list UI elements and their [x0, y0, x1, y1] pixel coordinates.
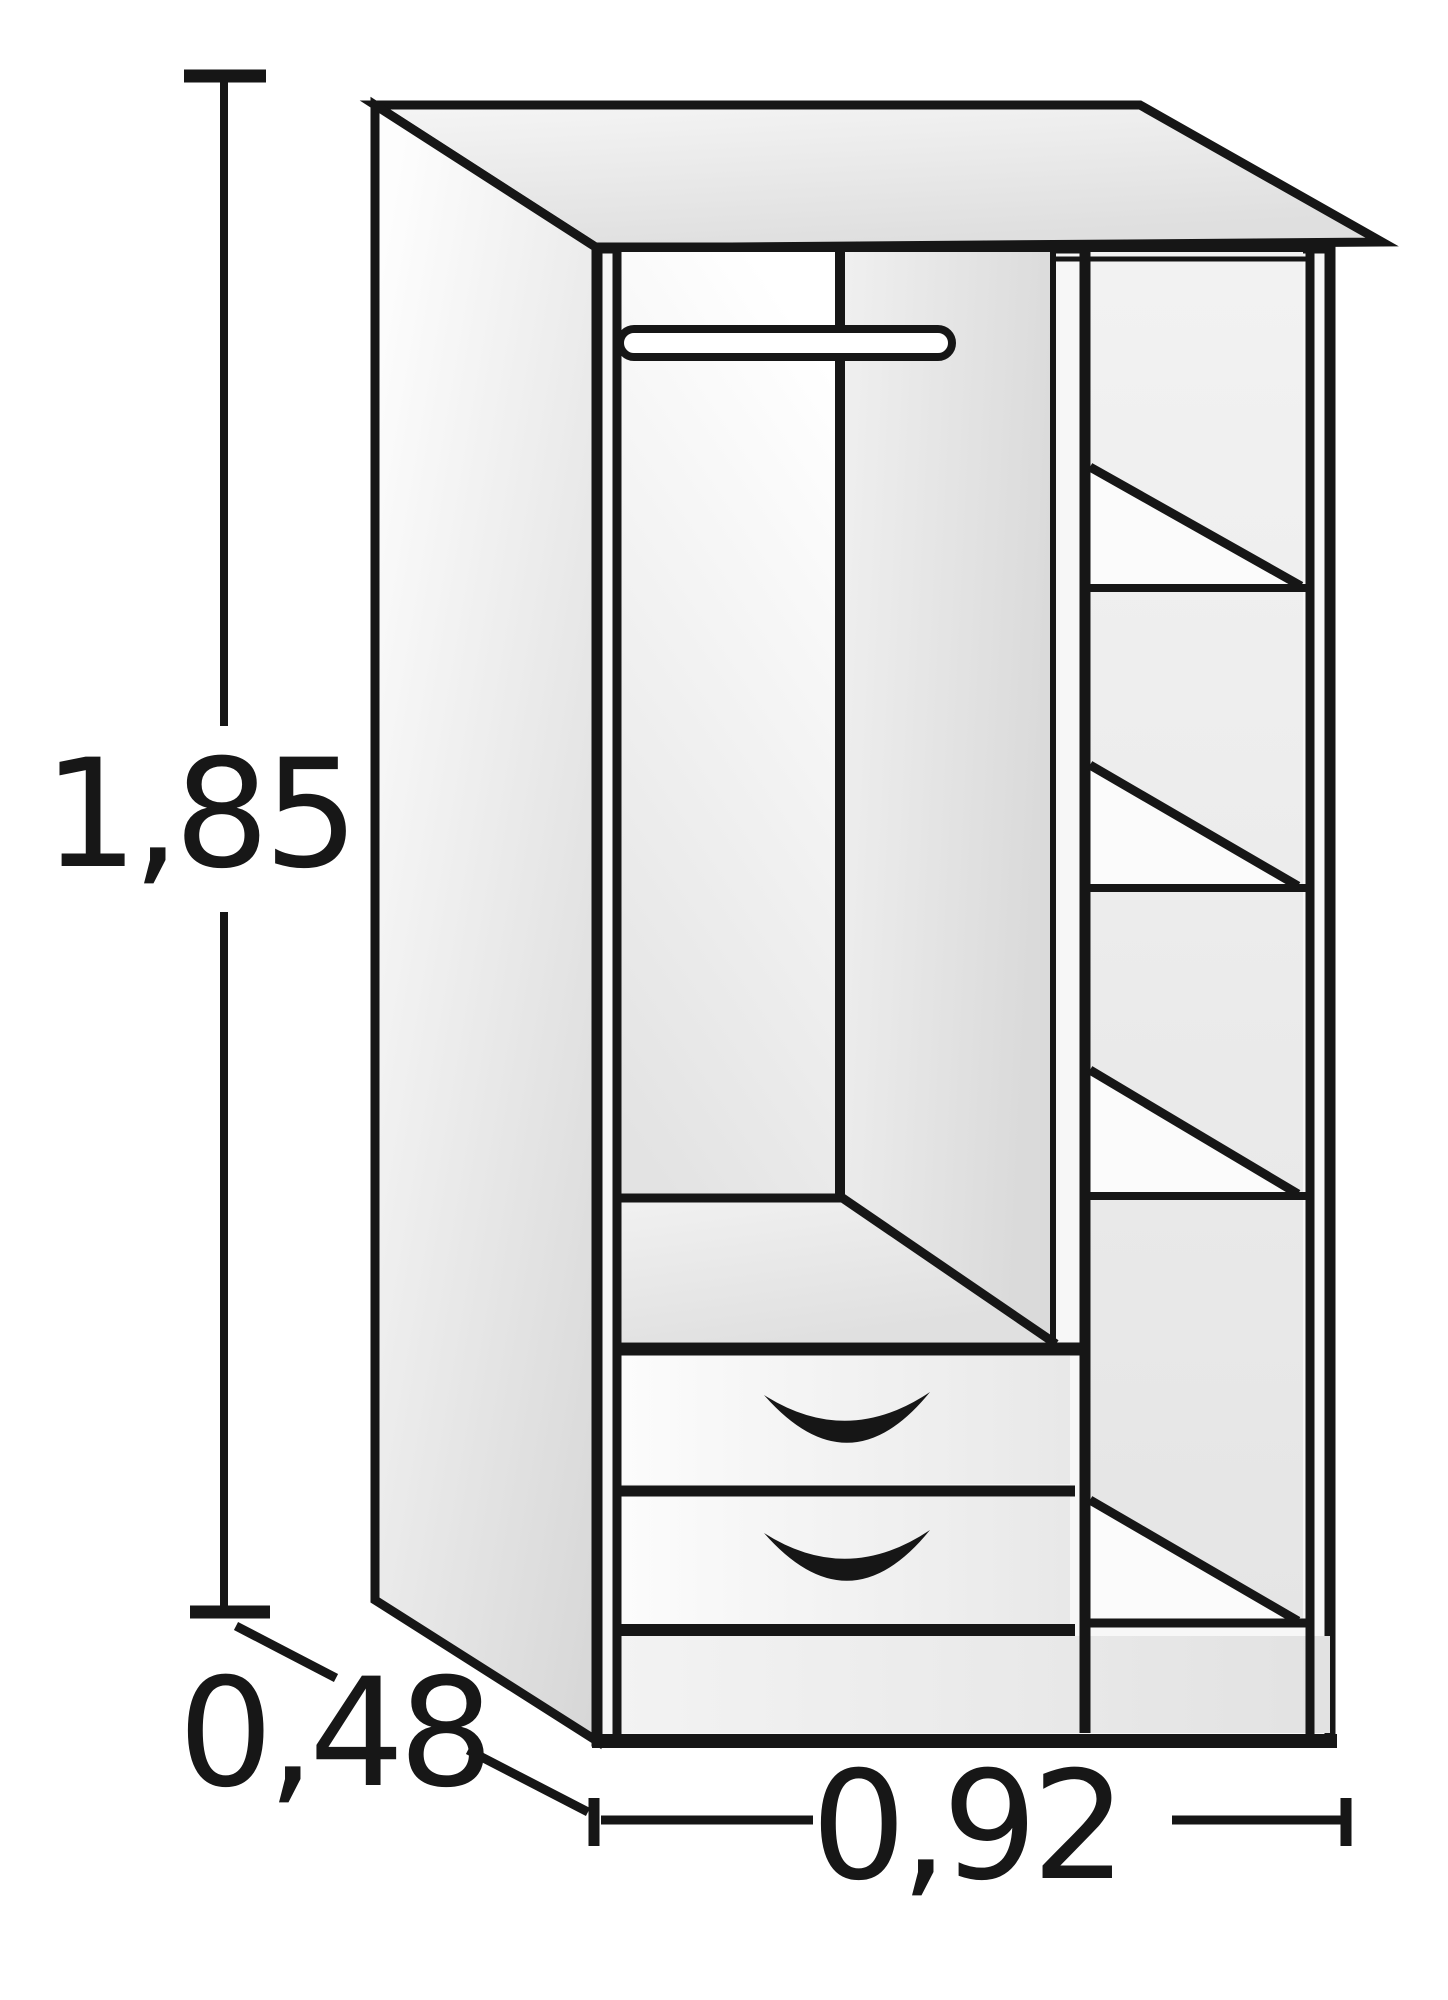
interior-surfaces	[617, 252, 1330, 1733]
wardrobe-dimension-diagram: 1,85 0,48 0,92	[0, 0, 1448, 2000]
hanging-rail	[620, 329, 952, 357]
shelf-column-back	[1085, 252, 1303, 1623]
compartment-back-panel	[617, 252, 840, 1198]
left-side-panel	[375, 105, 597, 1741]
depth-dimension-label: 0,48	[178, 1659, 488, 1809]
drawer-1-front	[620, 1356, 1070, 1484]
cabinet	[375, 105, 1382, 1741]
height-dimension-label: 1,85	[43, 740, 353, 890]
plinth	[617, 1636, 1330, 1733]
width-dimension-label: 0,92	[811, 1752, 1121, 1902]
divider-side-face	[840, 252, 1053, 1342]
